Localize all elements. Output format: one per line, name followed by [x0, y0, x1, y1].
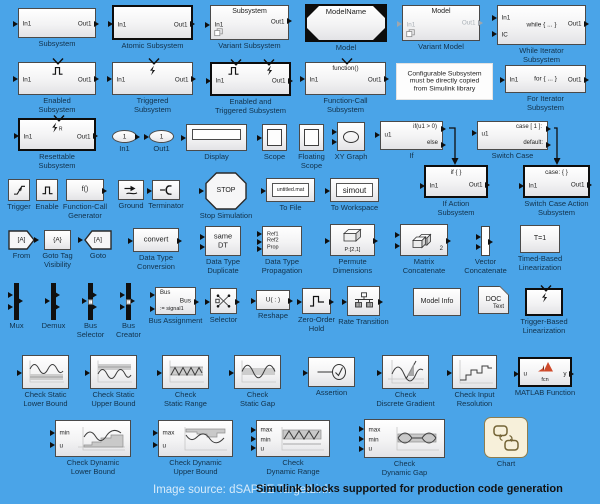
matlab-function-text: fcn	[520, 377, 570, 383]
subsystem[interactable]: In1Out1	[18, 8, 96, 38]
output-port-arrow-icon	[384, 76, 392, 82]
input-port-arrow-icon	[8, 292, 16, 298]
cube-icon	[331, 227, 374, 243]
port-label: Out1	[272, 78, 286, 85]
input-port-arrow-icon	[257, 231, 265, 237]
timed-based-linearization-label: Timed-Based Linearization	[480, 255, 600, 273]
matlab-function-label: MATLAB Function	[485, 389, 600, 398]
selector-block[interactable]	[210, 288, 237, 314]
input-port-arrow-icon	[206, 78, 214, 84]
bus-assignment-text: Bus	[160, 290, 170, 297]
zoh-icon	[303, 294, 330, 308]
input-port-arrow-icon	[519, 183, 527, 189]
wave-gap-icon	[238, 359, 278, 385]
switch-case-text: default:	[523, 140, 543, 147]
for-iterator-subsystem-text: for { ... }	[506, 75, 585, 82]
port-label: In1	[24, 133, 33, 140]
port-label: Out1	[271, 18, 285, 25]
grad-icon	[386, 358, 426, 386]
triggered-subsystem[interactable]: In1Out1	[112, 62, 193, 95]
matrix-concatenate[interactable]: 2	[400, 224, 448, 256]
wave-lower-icon	[26, 359, 66, 385]
configurable-subsystem-note[interactable]: Configurable Subsystem must be directly …	[396, 63, 493, 100]
enabled-and-triggered-subsystem[interactable]: In1Out1	[210, 62, 291, 96]
scope[interactable]	[262, 124, 287, 151]
function-call-subsystem[interactable]: In1Out1function()	[305, 62, 386, 95]
ground[interactable]	[118, 180, 144, 200]
input-port-arrow-icon	[492, 15, 500, 21]
display[interactable]	[186, 124, 247, 151]
dyn-upper-icon	[177, 425, 229, 453]
function-call-subsystem-text: function()	[306, 65, 385, 72]
switch-case-action-subsystem[interactable]: In1Out1case: { }	[523, 165, 590, 198]
input-port-arrow-icon	[359, 446, 367, 452]
model-info[interactable]: Model Info	[413, 288, 461, 316]
port-label: max	[163, 430, 175, 437]
mux[interactable]	[14, 283, 19, 320]
resettable-subsystem-label: Resettable Subsystem	[0, 153, 117, 171]
data-type-conversion-text: convert	[134, 236, 178, 245]
demux[interactable]	[51, 283, 56, 320]
input-port-arrow-icon	[397, 21, 405, 27]
selector-icon	[211, 294, 236, 309]
atomic-subsystem[interactable]: In1Out1	[112, 5, 193, 40]
function-call-generator-text: f()	[67, 186, 103, 194]
switch-case-action-connector	[554, 124, 564, 166]
input-port-arrow-icon	[325, 188, 333, 194]
bolt-icon	[265, 65, 274, 76]
bolt-icon	[113, 65, 192, 76]
screen	[267, 129, 282, 146]
output-port-arrow-icon	[18, 298, 26, 304]
input-port-arrow-icon	[303, 370, 311, 376]
check-dynamic-range[interactable]: maxminu	[256, 420, 330, 457]
output-port-arrow-icon	[194, 299, 202, 305]
goto-tag-visibility-text: {A}	[45, 236, 70, 243]
switch-case-action-subsystem-label: Switch Case Action Subsystem	[497, 200, 600, 218]
if-block-text: if(u1 > 0)	[413, 124, 437, 131]
port-label: min	[60, 430, 70, 437]
outport[interactable]: 1	[149, 130, 174, 143]
copy-icon	[214, 28, 223, 37]
port-label: In1	[529, 183, 538, 190]
port-label: min	[261, 436, 271, 443]
function-call-generator[interactable]: f()	[66, 179, 104, 201]
output-port-arrow-icon	[441, 142, 449, 148]
port-label: u	[261, 445, 265, 452]
port-label: max	[369, 426, 381, 433]
model-info-text: Model Info	[414, 298, 460, 306]
from[interactable]: [A]	[8, 230, 35, 250]
input-port-arrow-icon	[251, 436, 259, 442]
busnotch-icon	[126, 298, 131, 305]
matlab-icon	[520, 361, 570, 374]
port-label: Out1	[174, 21, 188, 28]
frame-corner	[306, 27, 320, 41]
xy-icon	[338, 129, 364, 144]
if-block[interactable]: u1if(u1 > 0)else	[380, 121, 443, 150]
to-workspace[interactable]: simout	[330, 178, 379, 202]
input-port-arrow-icon	[150, 292, 158, 298]
boltR-icon: R	[20, 122, 94, 133]
input-port-arrow-icon	[205, 22, 213, 28]
input-port-arrow-icon	[476, 244, 484, 250]
port-label: Out1	[368, 76, 382, 83]
screen	[304, 129, 319, 146]
switch-case[interactable]: u1case [ 1 ]:default:	[477, 121, 548, 150]
enable-port[interactable]	[36, 179, 58, 201]
configurable-subsystem-note-text: Configurable Subsystem must be directly …	[397, 70, 492, 93]
matlab-function[interactable]: uyfcn	[518, 357, 572, 387]
check-input-resolution[interactable]	[452, 355, 497, 389]
rate-transition-label: Rate Transition	[304, 318, 424, 327]
stop-simulation-label: Stop Simulation	[166, 212, 286, 221]
input-port-arrow-icon	[257, 246, 265, 252]
simulink-library-canvas: Image source: dSAPCE TargetLink Simulink…	[0, 0, 600, 504]
to-file[interactable]: untitled.mat	[266, 178, 315, 202]
doc-text-text: Text	[493, 304, 504, 311]
check-discrete-gradient[interactable]	[382, 355, 429, 389]
port-label: u	[60, 442, 64, 449]
bus-assignment-text: Bus	[180, 297, 191, 304]
check-static-range[interactable]	[162, 355, 209, 389]
variant-subsystem[interactable]: In1Out1Subsystem	[210, 5, 289, 40]
data-type-conversion[interactable]: convert	[133, 228, 179, 252]
port-label: Out1	[78, 76, 92, 83]
svg-text:R: R	[58, 126, 62, 132]
input-port-arrow-icon	[150, 306, 158, 312]
chart-label: Chart	[446, 460, 566, 469]
port-label: In1	[430, 183, 439, 190]
copy-icon	[406, 29, 415, 38]
input-port-arrow-icon	[85, 370, 93, 376]
while-iterator-subsystem[interactable]: In1ICOut1while { ... }	[497, 5, 586, 45]
input-port-arrow-icon	[300, 76, 308, 82]
input-port-arrow-icon	[257, 239, 265, 245]
input-port-arrow-icon	[17, 370, 25, 376]
pulse-icon	[37, 185, 57, 196]
timed-based-linearization-text: T=1	[521, 235, 559, 243]
output-port-arrow-icon	[94, 76, 102, 82]
check-static-gap[interactable]	[234, 355, 281, 389]
model[interactable]: ModelName	[305, 4, 387, 42]
timed-based-linearization[interactable]: T=1	[520, 225, 560, 253]
terminator[interactable]	[152, 180, 180, 200]
input-port-arrow-icon	[120, 304, 128, 310]
stop-simulation-text: STOP	[205, 187, 247, 195]
from-text: [A]	[8, 236, 35, 243]
screen	[192, 129, 241, 140]
input-port-arrow-icon	[50, 430, 58, 436]
output-port-arrow-icon	[191, 76, 199, 82]
output-port-arrow-icon	[92, 292, 100, 298]
output-port-arrow-icon	[478, 20, 486, 26]
input-port-arrow-icon	[359, 436, 367, 442]
switch-case-text: case [ 1 ]:	[516, 124, 542, 131]
variant-subsystem-text: Subsystem	[211, 8, 288, 16]
output-port-arrow-icon	[546, 142, 554, 148]
if-action-connector	[449, 124, 461, 166]
port-label: Out1	[462, 20, 476, 27]
port-label: max	[261, 427, 273, 434]
trigger-icon	[9, 185, 29, 196]
check-dynamic-range-label: Check Dynamic Range	[233, 459, 353, 477]
model-text: ModelName	[307, 8, 385, 17]
inport[interactable]: 1	[112, 130, 137, 143]
input-port-arrow-icon	[153, 442, 161, 448]
port-label: Out1	[77, 133, 91, 140]
port-label: IC	[502, 31, 508, 38]
input-port-arrow-icon	[14, 133, 22, 139]
goto-tag-visibility[interactable]: {A}	[44, 230, 71, 250]
port-label: u	[163, 442, 167, 449]
check-static-lower-bound[interactable]	[22, 355, 69, 389]
doc-text[interactable]: DOCText	[478, 286, 509, 314]
wave-upper-icon	[94, 359, 134, 385]
to-workspace-value: simout	[336, 183, 373, 197]
output-port-arrow-icon	[488, 239, 496, 245]
input-port-arrow-icon	[229, 370, 237, 376]
assert-icon	[317, 364, 347, 381]
trigger-based-linearization[interactable]	[525, 288, 563, 316]
port-label: In1	[216, 78, 225, 85]
pulse-icon	[227, 65, 240, 76]
input-port-arrow-icon	[261, 188, 269, 194]
bus-assignment[interactable]: BusBus:= signal1	[155, 287, 196, 315]
input-port-arrow-icon	[13, 21, 21, 27]
pulse-icon	[19, 65, 95, 76]
stairs-res-icon	[455, 358, 495, 386]
trigger-port[interactable]	[8, 179, 30, 201]
for-iterator-subsystem-label: For Iterator Subsystem	[486, 95, 600, 113]
dyn-gap-icon	[389, 425, 441, 453]
bus-creator[interactable]	[126, 283, 131, 320]
wave-range-icon	[166, 359, 206, 385]
input-port-arrow-icon	[251, 427, 259, 433]
output-port-arrow-icon	[485, 182, 493, 188]
data-type-duplicate-text: same DT	[206, 232, 240, 249]
output-port-arrow-icon	[190, 21, 198, 27]
doc-text-text: DOC	[479, 296, 508, 304]
dyn-range-icon	[274, 425, 326, 453]
term-icon	[153, 185, 179, 196]
bolt-icon	[527, 292, 561, 303]
port-label: Out1	[78, 21, 92, 28]
input-port-arrow-icon	[107, 76, 115, 82]
port-label: u1	[385, 132, 392, 139]
input-port-arrow-icon	[359, 426, 367, 432]
input-port-arrow-icon	[157, 370, 165, 376]
if-block-text: else	[427, 140, 438, 147]
reshape[interactable]: U( : )	[256, 290, 290, 310]
bus-selector[interactable]	[88, 283, 93, 320]
port-label: In1	[23, 76, 32, 83]
if-action-subsystem-text: if { }	[426, 169, 486, 176]
port-label: In1	[407, 21, 416, 28]
output-port-arrow-icon	[287, 18, 295, 24]
input-port-arrow-icon	[420, 183, 428, 189]
permute-dimensions[interactable]: P:[2,1]	[330, 224, 375, 256]
port-label: In1	[310, 76, 319, 83]
data-type-propagation[interactable]: Ref1 Ref2 Prop	[262, 226, 302, 256]
input-port-arrow-icon	[251, 445, 259, 451]
output-port-arrow-icon	[93, 133, 101, 139]
check-dynamic-lower-bound[interactable]: minu	[55, 420, 131, 457]
switch-case-action-subsystem-text: case: { }	[525, 169, 588, 176]
output-port-arrow-icon	[94, 21, 102, 27]
input-port-arrow-icon	[50, 442, 58, 448]
output-port-arrow-icon	[288, 78, 296, 84]
output-port-arrow-icon	[587, 182, 595, 188]
rate-transition[interactable]	[347, 286, 380, 316]
matrix-concatenate-text: 2	[440, 246, 443, 253]
output-port-arrow-icon	[92, 304, 100, 310]
port-label: u	[369, 446, 373, 453]
input-port-arrow-icon	[45, 298, 53, 304]
enabled-subsystem[interactable]: In1Out1	[18, 62, 96, 95]
caption-title: Simulink blocks supported for production…	[256, 483, 563, 495]
variant-model[interactable]: In1Out1Model	[402, 5, 480, 41]
input-port-arrow-icon	[492, 31, 500, 37]
while-iterator-subsystem-label: While Iterator Subsystem	[482, 47, 600, 65]
output-port-arrow-icon	[55, 304, 63, 310]
to-workspace-label: To Workspace	[295, 204, 415, 213]
xy-graph[interactable]	[337, 122, 365, 151]
input-port-arrow-icon	[181, 135, 189, 141]
input-port-arrow-icon	[472, 130, 480, 136]
floating-scope[interactable]	[299, 124, 324, 151]
vector-concatenate[interactable]	[481, 226, 490, 256]
inport-text: 1	[113, 133, 136, 140]
data-type-propagation-text: Ref1 Ref2 Prop	[267, 232, 279, 251]
variant-model-text: Model	[403, 8, 479, 16]
check-dynamic-gap[interactable]: maxminu	[364, 419, 445, 458]
while-iterator-subsystem-text: while { ... }	[498, 21, 585, 28]
input-port-arrow-icon	[375, 132, 383, 138]
port-label: min	[369, 436, 379, 443]
permute-dimensions-text: P:[2,1]	[331, 247, 374, 253]
chart[interactable]	[484, 417, 528, 458]
dyn-lower-icon	[75, 425, 127, 453]
port-label: In1	[118, 21, 127, 28]
input-port-arrow-icon	[13, 76, 21, 82]
function-call-subsystem-label: Function-Call Subsystem	[286, 97, 406, 115]
output-port-arrow-icon	[546, 126, 554, 132]
assertion[interactable]	[308, 357, 355, 387]
frame-corner	[372, 27, 386, 41]
port-label: In1	[23, 21, 32, 28]
input-port-arrow-icon	[476, 234, 484, 240]
input-port-arrow-icon	[8, 304, 16, 310]
outport-text: 1	[150, 133, 173, 140]
rate-icon	[348, 292, 379, 310]
chart-icon	[485, 422, 527, 454]
port-label: Out1	[175, 76, 189, 83]
to-file-value: untitled.mat	[272, 183, 309, 197]
port-label: Out1	[469, 182, 483, 189]
check-dynamic-upper-bound[interactable]: maxu	[158, 420, 233, 457]
for-iterator-subsystem[interactable]: In1Out1for { ... }	[505, 65, 586, 93]
input-port-arrow-icon	[108, 21, 116, 27]
input-port-arrow-icon	[377, 370, 385, 376]
port-label: In1	[117, 76, 126, 83]
port-label: Out1	[571, 182, 585, 189]
busnotch-icon	[88, 298, 93, 305]
input-port-arrow-icon	[120, 292, 128, 298]
output-port-arrow-icon	[441, 126, 449, 132]
bus-assignment-text: := signal1	[160, 306, 184, 312]
output-port-arrow-icon	[55, 292, 63, 298]
input-port-arrow-icon	[153, 430, 161, 436]
port-label: u1	[482, 130, 489, 137]
goto[interactable]: [A]	[84, 230, 112, 250]
zero-order-hold[interactable]	[302, 288, 331, 314]
if-action-subsystem[interactable]: In1Out1if { }	[424, 165, 488, 198]
data-type-duplicate[interactable]: same DT	[205, 226, 241, 256]
input-port-arrow-icon	[257, 135, 265, 141]
goto-text: [A]	[84, 236, 112, 243]
ground-icon	[119, 184, 143, 196]
check-static-upper-bound[interactable]	[90, 355, 137, 389]
reshape-text: U( : )	[257, 296, 289, 303]
trigger-based-linearization-label: Trigger-Based Linearization	[484, 318, 600, 336]
